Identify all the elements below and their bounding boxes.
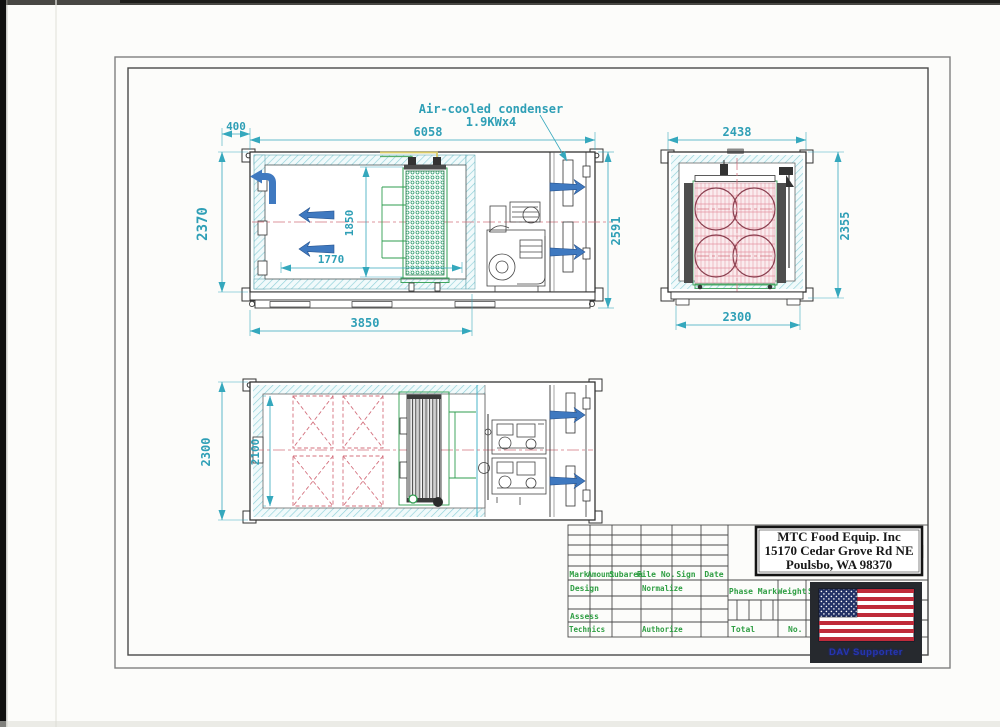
- end-view: 2438 2355 2300: [661, 125, 852, 330]
- dim-height-2355: 2355: [838, 212, 852, 241]
- company-address-2: Poulsbo, WA 98370: [786, 557, 892, 572]
- row-assess: Assess: [570, 612, 599, 621]
- col-mark: Mark: [569, 570, 588, 579]
- flag-caption: DAV Supporter: [829, 647, 903, 658]
- drawing-canvas: 400 6058 2370 1850 1770 2591 3850 Air-co…: [0, 0, 1000, 727]
- dim-inner-height-1850: 1850: [343, 210, 356, 237]
- company-box: MTC Food Equip. Inc 15170 Cedar Grove Rd…: [756, 527, 922, 575]
- col-sign: Sign: [676, 569, 695, 579]
- drawing-frame: [115, 57, 950, 668]
- dim-length-6058: 6058: [414, 125, 443, 139]
- label-phase-mark: Phase Mark: [729, 587, 777, 596]
- dim-inner-depth-2100: 2100: [249, 439, 262, 466]
- label-total: Total: [731, 625, 755, 634]
- side-elevation-view: 400 6058 2370 1850 1770 2591 3850 Air-co…: [195, 102, 623, 336]
- condenser-label-line2: 1.9KWx4: [466, 115, 517, 129]
- dim-inner-length-1770: 1770: [318, 253, 345, 266]
- flag-patch: DAV Supporter: [810, 582, 922, 663]
- us-flag: [819, 589, 914, 641]
- flag-canton: [819, 589, 857, 617]
- cell-authorize: Authorize: [642, 625, 683, 634]
- company-address-1: 15170 Cedar Grove Rd NE: [764, 543, 913, 558]
- label-weight: Weight: [778, 586, 807, 596]
- dim-depth-2300: 2300: [199, 438, 213, 467]
- condenser-label-line1: Air-cooled condenser: [419, 102, 564, 116]
- dim-offset-400: 400: [226, 120, 246, 133]
- col-file-no: File No.: [637, 569, 676, 579]
- scanned-drawing-page: 400 6058 2370 1850 1770 2591 3850 Air-co…: [0, 0, 1000, 727]
- dim-overall-height-2591: 2591: [609, 217, 623, 246]
- row-technics: Technics: [569, 625, 605, 634]
- plan-view: 2300 2100: [199, 379, 602, 523]
- col-date: Date: [704, 570, 723, 579]
- base-skid-side: [249, 292, 595, 308]
- company-name: MTC Food Equip. Inc: [777, 529, 901, 544]
- dim-base-width-2300: 2300: [723, 310, 752, 324]
- cell-normalize: Normalize: [642, 584, 683, 593]
- dim-height-2370: 2370: [195, 207, 211, 241]
- row-design: Design: [570, 583, 599, 593]
- dim-base-length-3850: 3850: [351, 316, 380, 330]
- label-no: No.: [788, 625, 802, 634]
- dim-width-2438: 2438: [723, 125, 752, 139]
